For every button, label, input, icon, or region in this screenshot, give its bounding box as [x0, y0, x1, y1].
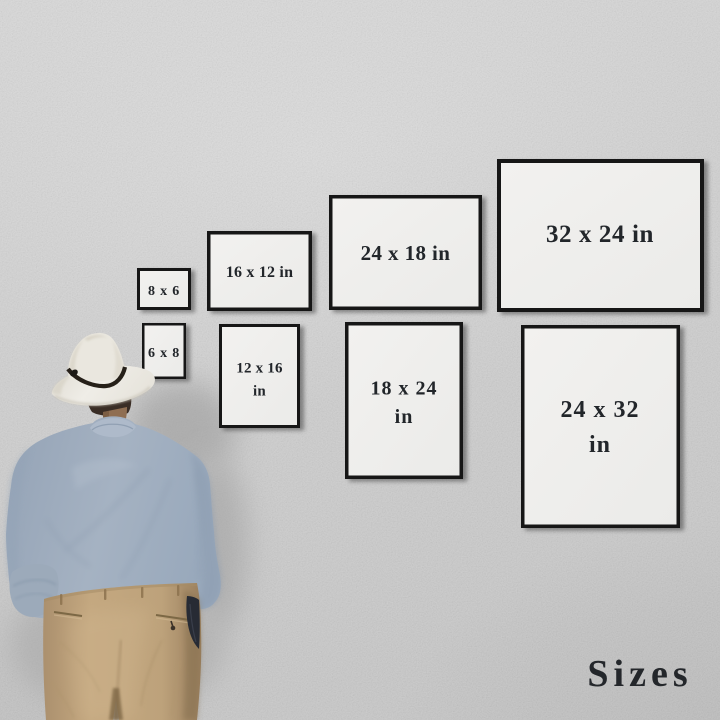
svg-text:in: in [589, 432, 611, 458]
svg-text:16 x 12 in: 16 x 12 in [226, 264, 293, 281]
svg-text:12 x 16: 12 x 16 [236, 361, 283, 377]
svg-text:8 x 6: 8 x 6 [148, 284, 180, 299]
svg-text:Sizes: Sizes [587, 653, 692, 695]
svg-text:6 x 8: 6 x 8 [148, 346, 180, 361]
svg-text:in: in [395, 406, 414, 428]
svg-text:in: in [253, 384, 266, 400]
svg-text:18 x 24: 18 x 24 [371, 378, 438, 400]
svg-text:24 x 32: 24 x 32 [561, 397, 640, 423]
svg-text:24 x 18 in: 24 x 18 in [361, 241, 451, 265]
svg-text:32 x 24 in: 32 x 24 in [546, 221, 654, 248]
